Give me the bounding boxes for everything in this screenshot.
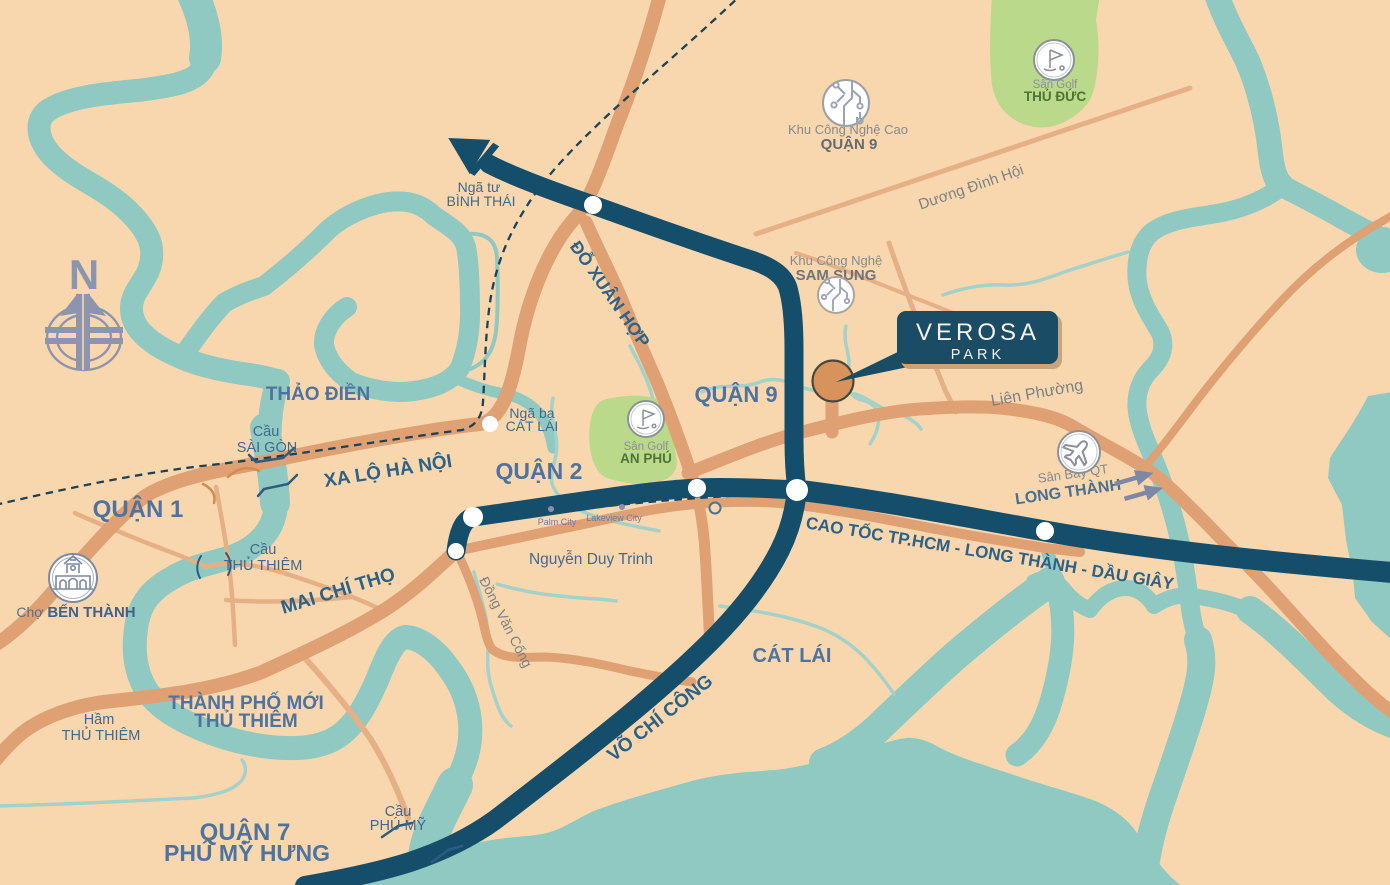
svg-text:QUẬN 9: QUẬN 9 <box>694 382 777 407</box>
svg-text:AN PHÚ: AN PHÚ <box>620 451 672 466</box>
svg-text:Nguyễn Duy Trinh: Nguyễn Duy Trinh <box>529 551 653 568</box>
svg-text:SÀI GÒN: SÀI GÒN <box>237 439 297 456</box>
svg-text:BÌNH THÁI: BÌNH THÁI <box>447 193 516 209</box>
svg-text:THỦ THIÊM: THỦ THIÊM <box>194 710 297 732</box>
svg-text:Cầu: Cầu <box>253 424 280 440</box>
svg-text:CÁT LÁI: CÁT LÁI <box>753 644 832 667</box>
svg-text:Hầm: Hầm <box>84 712 115 728</box>
svg-text:Khu Công Nghệ: Khu Công Nghệ <box>790 253 883 268</box>
svg-text:QUẬN 1: QUẬN 1 <box>93 495 184 523</box>
svg-text:PARK: PARK <box>951 347 1005 363</box>
svg-text:CÁT LÁI: CÁT LÁI <box>506 418 559 434</box>
svg-text:QUẬN 2: QUẬN 2 <box>496 457 583 484</box>
svg-text:THẢO ĐIỀN: THẢO ĐIỀN <box>266 383 371 405</box>
svg-text:VEROSA: VEROSA <box>916 319 1040 346</box>
svg-text:PHÚ MỸ: PHÚ MỸ <box>370 817 427 834</box>
svg-text:Lakeview City: Lakeview City <box>586 513 642 523</box>
svg-text:Chợ BẾN THÀNH: Chợ BẾN THÀNH <box>16 604 135 621</box>
svg-text:THỦ ĐỨC: THỦ ĐỨC <box>1024 89 1086 104</box>
svg-text:PHÚ MỸ HƯNG: PHÚ MỸ HƯNG <box>164 839 330 866</box>
svg-text:THỦ THIÊM: THỦ THIÊM <box>224 556 303 574</box>
svg-text:THỦ THIÊM: THỦ THIÊM <box>62 726 141 744</box>
svg-text:QUẬN 9: QUẬN 9 <box>821 135 878 153</box>
svg-text:Palm City: Palm City <box>538 517 577 527</box>
svg-text:N: N <box>69 251 99 298</box>
svg-text:Cầu: Cầu <box>250 542 277 558</box>
